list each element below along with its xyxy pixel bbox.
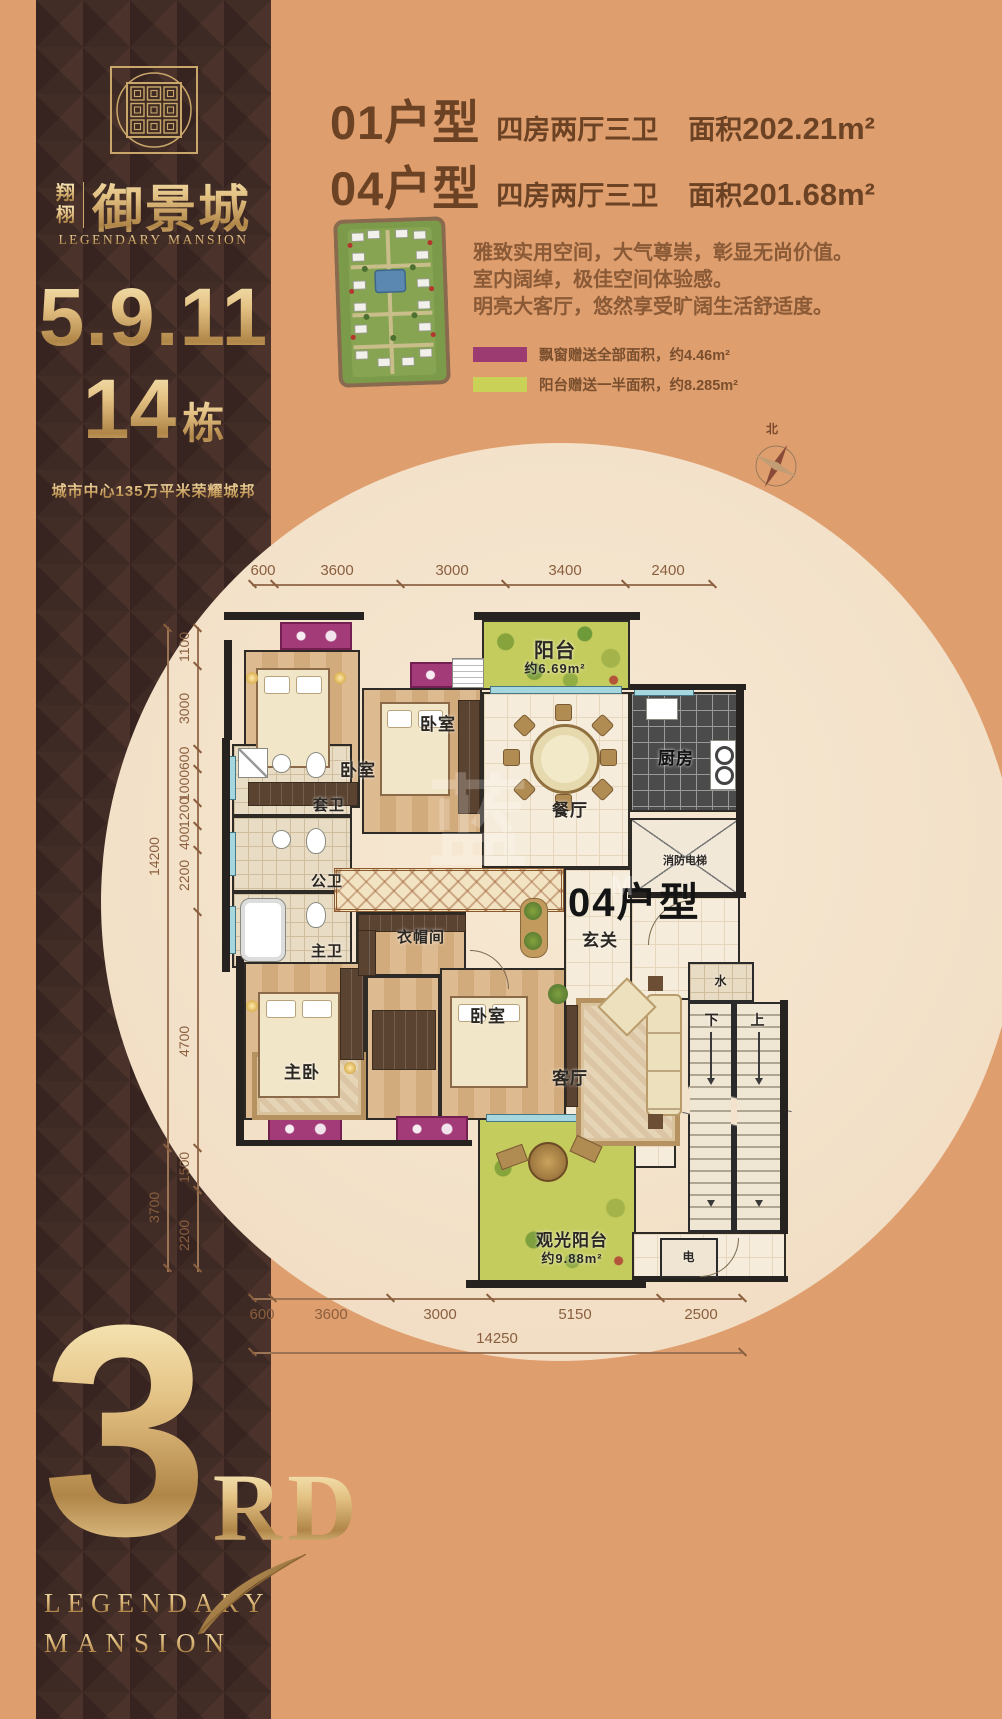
legend-item-balcony: 阳台赠送一半面积，约8.285m² [473,374,738,395]
footer-big-number: 3 [42,1312,209,1548]
lamp [344,1062,356,1074]
lamp [246,672,258,684]
label-bath-master: 主卫 [300,940,354,961]
toilet-suite [306,752,326,778]
plant-icon [524,932,542,950]
wall-left-bedroom [224,640,232,740]
unit-04-area-label: 面积 [688,174,742,213]
intro-line-2: 室内阔绰，极佳空间体验感。 [473,267,913,294]
lamp [246,1000,258,1012]
wall-left-master [236,956,244,1146]
dim-top-3600: 3600 [307,562,367,579]
lamp [334,672,346,684]
stair-arrow [758,1032,760,1078]
sidebar-tagline: 城市中心135万平米荣耀城邦 [36,480,271,501]
toilet-public [306,828,326,854]
legend-item-baywindow: 飘窗赠送全部面积，约4.46m² [473,344,730,365]
watermark-glyph: 蓝 [428,742,528,887]
building-number-row: 14 栋 [36,366,271,452]
brand-cn-small-1: 翔 [56,183,75,205]
label-kitchen: 厨房 [646,744,706,769]
compass-rose-icon [742,420,810,496]
wall-top-balcony [474,612,640,620]
unit-04-rooms: 四房两厅三卫 [496,174,658,213]
legend-swatch-baywindow [473,347,527,362]
label-dining: 餐厅 [540,796,600,821]
dim-left-2200b: 2200 [176,1204,192,1266]
label-bath-suite: 套卫 [302,794,356,815]
label-living: 客厅 [540,1064,600,1089]
dining-chair [600,749,617,766]
wall-top-bedroom [224,612,364,620]
dim-line-top [252,584,714,586]
kitchen-sink [646,698,678,720]
siteplan-thumbnail [333,216,451,388]
wall-bottom-balcony [466,1280,646,1288]
brand-name-row: 翔 栩 御景城 [36,168,271,242]
legend-label-balcony: 阳台赠送一半面积，约8.285m² [539,374,738,395]
stairs-down-label: 下 [692,1010,732,1030]
label-balcony-bottom-area: 约9.88m² [510,1248,634,1267]
footer-ord-suffix: RD [213,1468,362,1548]
brand-cn-large: 御景城 [92,168,251,242]
dim-bottom-2500: 2500 [671,1306,731,1323]
unit-04-area-value: 201.68m² [742,177,875,213]
stair-arrowhead [707,1200,715,1207]
label-cloakroom: 衣帽间 [382,926,460,947]
dim-left-2200a: 2200 [176,844,192,906]
pillow [266,1000,295,1018]
shower-suite [238,748,268,778]
dim-top-3000: 3000 [422,562,482,579]
unit-01-code: 01户型 [330,84,480,153]
label-bedroom-bottom: 卧室 [458,1002,518,1027]
dim-line-left-outer [167,627,169,1272]
dim-bottom-5150: 5150 [545,1306,605,1323]
unit-04-code: 04户型 [330,150,480,219]
intro-line-1: 雅致实用空间，大气尊崇，彰显无尚价值。 [473,240,913,267]
poster-page: 翔 栩 御景城 LEGENDARY MANSION 5.9.11 14 栋 城市… [0,0,1002,1719]
stairs-up-label: 上 [738,1010,778,1030]
balcony-table [528,1142,568,1182]
bathtub-master [240,898,286,962]
wardrobe-closet-zone [372,1010,436,1070]
dim-top-2400: 2400 [638,562,698,579]
brand-en: LEGENDARY MANSION [36,232,271,248]
sink-public [272,830,291,849]
label-bath-public: 公卫 [300,870,354,891]
baywindow-bedroom-bottom [396,1116,468,1142]
dim-bottom-3000: 3000 [410,1306,470,1323]
stove-burner-icon [715,746,734,765]
stair-arrowhead [755,1200,763,1207]
side-table [648,1114,663,1129]
stair-arrowhead [707,1078,715,1085]
building-number: 14 [83,366,176,452]
dim-line-left-inner [197,627,199,1272]
pillow [302,1000,331,1018]
dim-line-bottom-2 [252,1352,742,1354]
window-balcony-top [490,686,622,694]
stairwell: 下 上 [688,1002,782,1232]
stove-burner-icon [715,766,734,785]
baywindow-bedroom-topleft [280,622,352,650]
intro-line-3: 明亮大客厅，悠然享受旷阔生活舒适度。 [473,294,913,321]
dim-bottom-600: 600 [232,1306,292,1323]
label-bedroom-topmid: 卧室 [408,710,468,735]
compass: 北 [742,420,810,496]
wardrobe-cloakroom-left [358,930,376,976]
brand-divider [83,182,84,228]
wall-top-kitchen [630,684,746,690]
water-meter-label: 水 [688,972,754,989]
dim-left-4700: 4700 [176,1010,192,1072]
brand-cn-small-2: 栩 [56,205,75,227]
unit-01-rooms: 四房两厅三卫 [496,108,658,147]
plant-icon [548,984,568,1004]
unit-01-area-label: 面积 [688,108,742,147]
dim-top-600: 600 [233,562,293,579]
plant-icon [524,902,542,920]
dining-table [530,724,600,794]
tv-cabinet [566,1005,578,1107]
ac-unit [452,658,484,688]
dim-line-bottom-1 [252,1298,742,1300]
wardrobe-master [340,968,364,1060]
wall-left-baths [222,738,230,972]
plan-unit-label: 04户型 [568,870,701,928]
dim-left-1100: 1100 [176,616,192,678]
unit-row-01: 01户型 四房两厅三卫 面积 202.21m² [330,84,875,153]
dim-left-total-14200: 14200 [146,826,162,888]
brand-seal-icon [106,62,202,158]
pillow [296,676,323,694]
buildings-line: 5.9.11 [36,276,271,360]
label-master: 主卧 [272,1058,332,1083]
dim-bottom-3600: 3600 [301,1306,361,1323]
wall-bottom-master [240,1140,472,1146]
electrical-label: 电 [660,1248,718,1265]
label-elevator: 消防电梯 [640,852,730,868]
dim-bottom-total-14250: 14250 [467,1330,527,1347]
dining-chair [555,704,572,721]
watermark-letter: M [610,870,633,902]
stair-arrowhead [755,1078,763,1085]
label-balcony-top-area: 约6.69m² [515,658,595,677]
pillow [264,676,291,694]
toilet-master [306,902,326,928]
building-suffix: 栋 [182,390,224,451]
wall-right-stairs [780,1000,788,1234]
unit-01-area-value: 202.21m² [742,111,875,147]
legend-swatch-balcony [473,377,527,392]
dim-left-subtotal-3700: 3700 [146,1176,162,1238]
sink-suite [272,754,291,773]
footer-ordinal: 3 RD [42,1312,362,1548]
unit-row-04: 04户型 四房两厅三卫 面积 201.68m² [330,150,875,219]
dim-left-1500: 1500 [176,1136,192,1198]
intro-paragraph: 雅致实用空间，大气尊崇，彰显无尚价值。 室内阔绰，极佳空间体验感。 明亮大客厅，… [473,240,913,321]
label-entry: 玄关 [570,926,630,951]
side-table [648,976,663,991]
wall-right-kitchen [736,690,744,898]
legend-label-baywindow: 飘窗赠送全部面积，约4.46m² [539,344,730,365]
label-bedroom-topleft: 卧室 [328,756,388,781]
stair-arrow [710,1032,712,1078]
dim-top-3400: 3400 [535,562,595,579]
